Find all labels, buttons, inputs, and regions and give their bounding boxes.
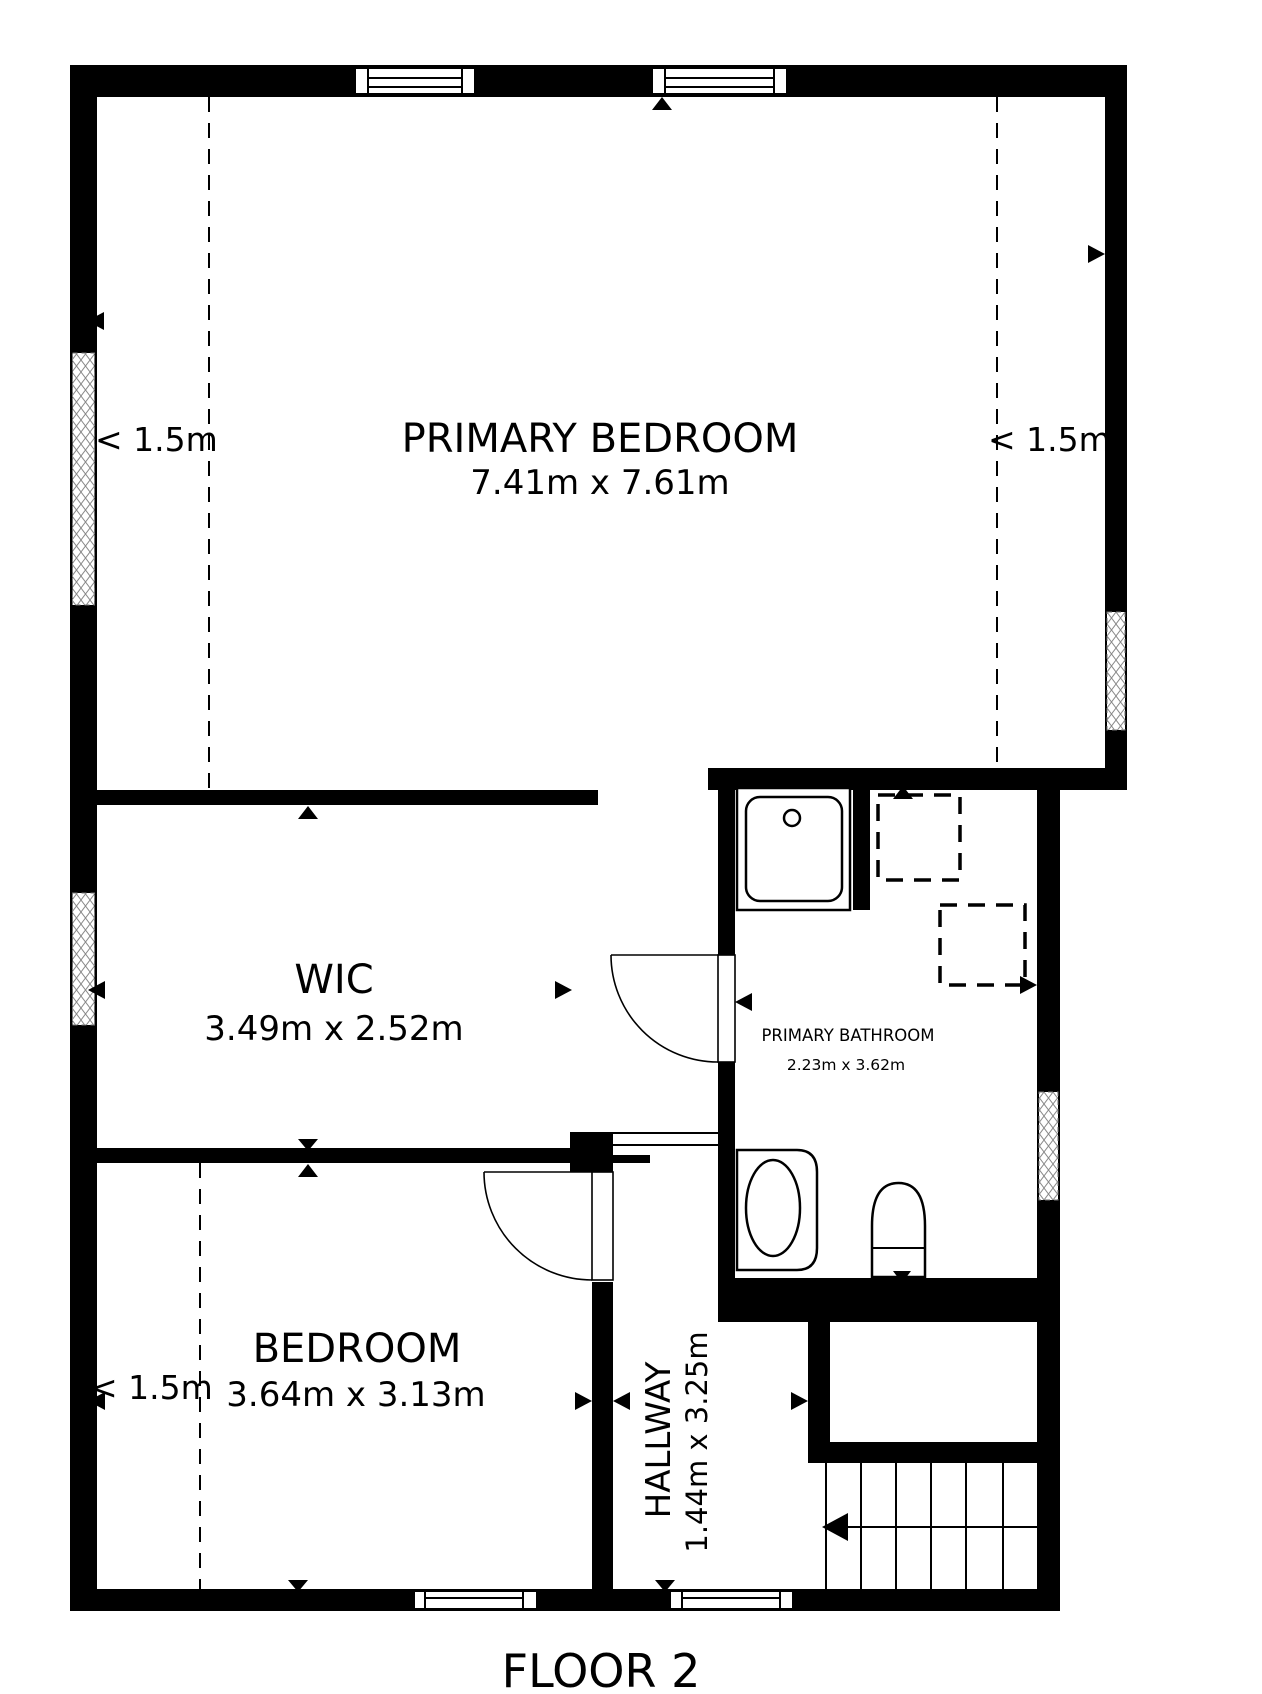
window-top-left <box>355 68 475 94</box>
primary-bedroom-dims: 7.41m x 7.61m <box>470 463 729 503</box>
hallway-dims: 1.44m x 3.25m <box>680 1331 714 1552</box>
window-bathroom-right <box>1039 1092 1058 1200</box>
bedroom-dims: 3.64m x 3.13m <box>226 1375 485 1415</box>
wall-top <box>70 65 1127 97</box>
marker-right-icon <box>1020 976 1037 994</box>
marker-left-icon <box>735 993 752 1011</box>
primary-bathroom-label: PRIMARY BATHROOM <box>761 1026 934 1045</box>
doors <box>484 955 735 1280</box>
window-bottom-bedroom <box>414 1591 537 1609</box>
sink-icon <box>737 1150 817 1270</box>
hallway-label: HALLWAY <box>639 1361 679 1518</box>
window-left-primary-bedroom <box>73 353 95 605</box>
marker-right-icon <box>555 981 572 999</box>
dashed-box-upper <box>878 795 960 880</box>
primary-bathroom-dims: 2.23m x 3.62m <box>787 1056 905 1074</box>
window-right-primary-bedroom <box>1107 612 1125 730</box>
marker-up-icon <box>652 97 672 110</box>
window-top-right <box>652 68 787 94</box>
marker-right-icon <box>791 1392 808 1410</box>
wall-bathroom-top <box>708 768 1127 790</box>
marker-up-icon <box>298 1164 318 1177</box>
marker-right-icon <box>575 1392 592 1410</box>
wic-label: WIC <box>294 957 373 1003</box>
window-bottom-hallway <box>670 1591 793 1609</box>
marker-right-icon <box>1088 245 1105 263</box>
ceiling-label-left: < 1.5m <box>95 420 218 459</box>
wall-bathroom-left-lower <box>718 1062 735 1322</box>
toilet-icon <box>872 1183 925 1283</box>
wall-bottom <box>70 1589 1060 1611</box>
floor-plan-svg: PRIMARY BEDROOM 7.41m x 7.61m WIC 3.49m … <box>0 0 1262 1694</box>
floor-title: FLOOR 2 <box>502 1644 701 1694</box>
wall-hallway-right <box>808 1322 830 1463</box>
window-left-wic <box>73 893 95 1025</box>
wall-wic-bottom <box>70 1148 570 1163</box>
skylight-dashed-boxes <box>878 795 1025 985</box>
shower-icon <box>737 788 850 910</box>
wall-door-header-block <box>570 1132 613 1172</box>
wall-shower-stub <box>853 770 870 910</box>
ceiling-label-bedroom: < 1.5m <box>90 1368 213 1407</box>
wall-bathroom-left-upper <box>718 768 735 955</box>
wall-bathroom-bottom <box>718 1278 1060 1322</box>
wall-hallway-left <box>592 1282 613 1611</box>
wall-stairwell-top <box>808 1442 1037 1463</box>
wall-separator-stub <box>613 1155 650 1163</box>
marker-left-icon <box>613 1392 630 1410</box>
stairs-icon <box>822 1463 1037 1589</box>
dashed-box-lower <box>940 905 1025 985</box>
bathroom-door-icon <box>611 955 735 1062</box>
bedroom-label: BEDROOM <box>253 1326 462 1372</box>
bedroom-door-icon <box>484 1172 613 1280</box>
primary-bedroom-label: PRIMARY BEDROOM <box>402 416 799 462</box>
ceiling-label-right: < 1.5m <box>988 420 1111 459</box>
floor-plan-page: PRIMARY BEDROOM 7.41m x 7.61m WIC 3.49m … <box>0 0 1262 1694</box>
wic-dims: 3.49m x 2.52m <box>204 1009 463 1049</box>
wall-wic-top <box>70 790 598 805</box>
marker-up-icon <box>298 806 318 819</box>
